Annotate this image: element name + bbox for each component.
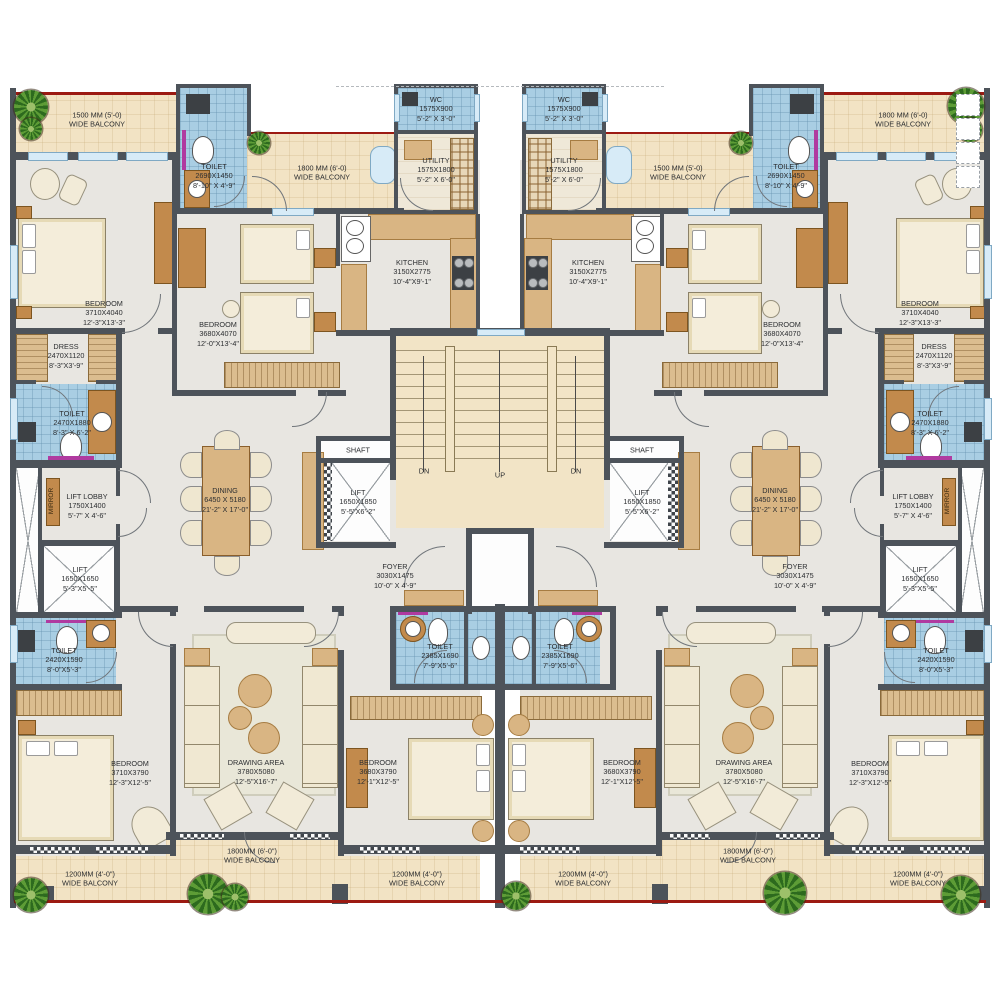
wardrobe: [520, 696, 652, 720]
label-lift-small-left: LIFT 1650X1650 5'-3"X5'-5": [61, 565, 98, 593]
label-drawing-left: DRAWING AREA 3780X5080 12'-5"X16'-7": [228, 758, 285, 786]
label-toilet-guest-right: TOILET 2420X1590 8'-0"X5'-3": [917, 646, 954, 674]
label-bedroom-master-left: BEDROOM 3710X4040 12'-3"X13'-3": [83, 299, 125, 327]
label-balcony-1500-inner-right: 1500 MM (5'-0) WIDE BALCONY: [650, 164, 706, 183]
label-mirror-left: MIRROR: [48, 488, 56, 514]
coffee-table: [730, 674, 764, 708]
wardrobe: [662, 362, 778, 388]
sofa: [782, 666, 818, 788]
label-dining-left: DINING 6450 X 5180 21'-2" X 17'-0": [202, 486, 248, 514]
coffee-table: [238, 674, 272, 708]
plant: [764, 872, 806, 914]
label-balcony-1200-left: 1200MM (4'-0") WIDE BALCONY: [62, 870, 118, 889]
label-toilet-entry-right: TOILET 2690X1450 8'-10" X 4'-9": [765, 162, 807, 190]
label-wc-left: WC 1575X900 5'-2" X 3'-0": [417, 95, 455, 123]
sofa: [302, 666, 338, 788]
shower: [790, 94, 814, 114]
label-kitchen-right: KITCHEN 3150X2775 10'-4"X9'-1": [569, 258, 607, 286]
label-wc-right: WC 1575X900 5'-2" X 3'-0": [545, 95, 583, 123]
label-bedroom-master-right: BEDROOM 3710X4040 12'-3"X13'-3": [899, 299, 941, 327]
label-foyer-left: FOYER 3030X1475 10'-0" X 4'-9": [374, 562, 416, 590]
sofa: [664, 666, 700, 788]
label-balcony-1800-inner-left: 1800 MM (6'-0) WIDE BALCONY: [294, 164, 350, 183]
stair-hall: [396, 480, 604, 528]
label-kitchen-left: KITCHEN 3150X2775 10'-4"X9'-1": [393, 258, 431, 286]
floor-plan: 1500 MM (5'-0) WIDE BALCONY 1800 MM (6'-…: [0, 0, 1000, 1000]
plant: [942, 876, 980, 914]
label-shaft-left: SHAFT: [346, 445, 370, 454]
label-balcony-1200-right: 1200MM (4'-0") WIDE BALCONY: [555, 870, 611, 889]
label-shaft-right: SHAFT: [630, 445, 654, 454]
duct-right: [960, 466, 984, 616]
plant: [248, 132, 270, 154]
label-dress-left: DRESS 2470X1120 8'-3"X3'-9": [48, 342, 85, 370]
label-dn-left: DN: [419, 466, 430, 475]
duct-left: [16, 466, 40, 616]
label-lift-main-left: LIFT 1650X1850 5'-5"X6'-2": [339, 488, 376, 516]
closet: [954, 334, 986, 382]
label-bedroom-guest-right: BEDROOM 3710X3790 12'-3"X12'-5": [849, 759, 891, 787]
closet: [88, 334, 118, 382]
label-lift-small-right: LIFT 1650X1650 5'-3"X5'-5": [901, 565, 938, 593]
label-bedroom-guest-left: BEDROOM 3710X3790 12'-3"X12'-5": [109, 759, 151, 787]
shower: [186, 94, 210, 114]
label-balcony-1200-right-b: 1200MM (4'-0") WIDE BALCONY: [890, 870, 946, 889]
label-toilet-common-right: TOILET 2385X1690 7'-9"X5'-6": [541, 642, 578, 670]
label-toilet-master-left: TOILET 2470X1880 8'-3" X 6'-2": [53, 409, 91, 437]
wc-bowl: [192, 136, 214, 164]
label-balcony-1800-bottom-right: 1800MM (6'-0") WIDE BALCONY: [720, 847, 776, 866]
label-drawing-right: DRAWING AREA 3780X5080 12'-5"X16'-7": [716, 758, 773, 786]
plant: [222, 884, 248, 910]
label-utility-right: UTILITY 1575X1800 5'-2" X 6'-0": [545, 156, 583, 184]
label-bedroom-second-left: BEDROOM 3680X3790 12'-1"X12'-5": [357, 758, 399, 786]
kitchen-counter: [526, 214, 634, 240]
plant: [730, 132, 752, 154]
label-dining-right: DINING 6450 X 5180 21'-2" X 17'-0": [752, 486, 798, 514]
wardrobe: [224, 362, 340, 388]
label-bedroom-kids-right: BEDROOM 3680X4070 12'-0"X13'-4": [761, 320, 803, 348]
kitchen-counter: [368, 214, 476, 240]
label-balcony-1800-top-right: 1800 MM (6'-0) WIDE BALCONY: [875, 111, 931, 130]
label-toilet-guest-left: TOILET 2420X1590 8'-0"X5'-3": [45, 646, 82, 674]
label-balcony-1500-top-left: 1500 MM (5'-0) WIDE BALCONY: [69, 111, 125, 130]
label-balcony-1200-left-b: 1200MM (4'-0") WIDE BALCONY: [389, 870, 445, 889]
armchair: [30, 168, 60, 200]
label-lift-lobby-left: LIFT LOBBY 1750X1400 5'-7" X 4'-6": [66, 492, 107, 520]
sofa: [184, 666, 220, 788]
plant: [14, 878, 48, 912]
wardrobe: [350, 696, 482, 720]
label-foyer-right: FOYER 3030X1475 10'-0" X 4'-9": [774, 562, 816, 590]
label-bedroom-kids-left: BEDROOM 3680X4070 12'-0"X13'-4": [197, 320, 239, 348]
closet: [16, 334, 48, 382]
label-bedroom-second-right: BEDROOM 3680X3790 12'-1"X12'-5": [601, 758, 643, 786]
label-up: UP: [495, 470, 505, 479]
label-dn-right: DN: [571, 466, 582, 475]
closet: [884, 334, 914, 382]
label-utility-left: UTILITY 1575X1800 5'-2" X 6'-0": [417, 156, 455, 184]
label-lift-lobby-right: LIFT LOBBY 1750X1400 5'-7" X 4'-6": [892, 492, 933, 520]
label-toilet-master-right: TOILET 2470X1880 8'-3" X 6'-2": [911, 409, 949, 437]
label-lift-main-right: LIFT 1650X1850 5'-5"X6'-2": [623, 488, 660, 516]
unit-gap: [472, 534, 528, 612]
label-toilet-common-left: TOILET 2385X1690 7'-9"X5'-6": [421, 642, 458, 670]
label-balcony-1800-bottom-left: 1800MM (6'-0") WIDE BALCONY: [224, 847, 280, 866]
plant: [20, 118, 42, 140]
label-mirror-right: MIRROR: [944, 488, 952, 514]
label-dress-right: DRESS 2470X1120 8'-3"X3'-9": [916, 342, 953, 370]
wardrobe: [16, 690, 122, 716]
wardrobe: [880, 690, 986, 716]
plant: [502, 882, 530, 910]
label-toilet-entry-left: TOILET 2690X1450 8'-10" X 4'-9": [193, 162, 235, 190]
